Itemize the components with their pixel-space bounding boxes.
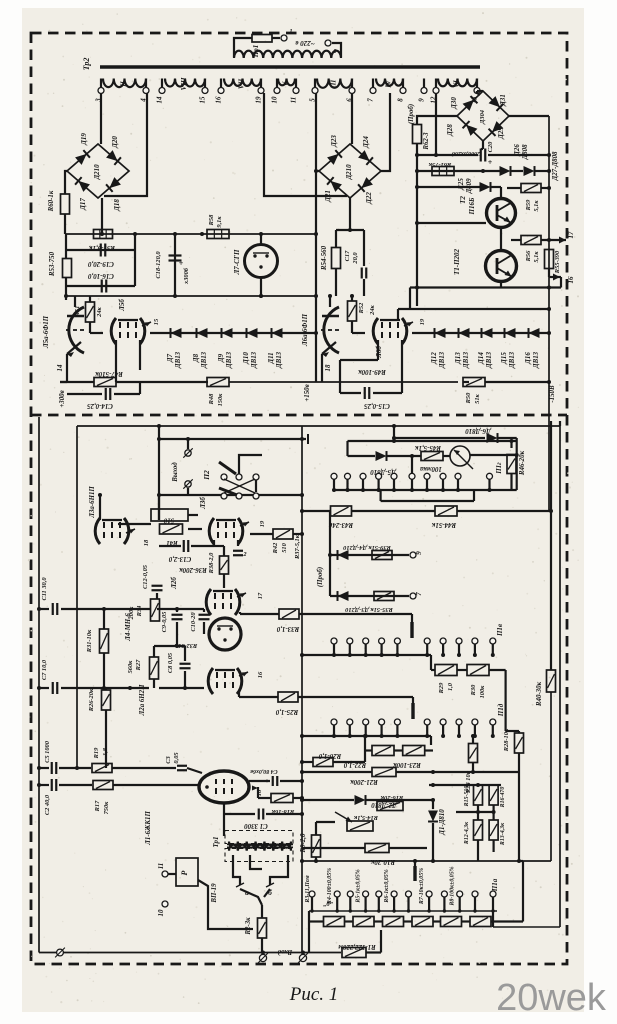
svg-text:Рис. 1: Рис. 1 xyxy=(289,984,339,1005)
svg-text:510: 510 xyxy=(163,517,174,524)
svg-text:Д25: Д25 xyxy=(458,178,465,191)
svg-text:ДВ13: ДВ13 xyxy=(175,351,182,369)
svg-text:R36-200к: R36-200к xyxy=(179,566,208,573)
svg-text:R30: R30 xyxy=(470,684,477,696)
svg-text:Д14: Д14 xyxy=(478,352,485,365)
svg-text:Д12: Д12 xyxy=(431,352,438,365)
svg-text:1,0: 1,0 xyxy=(447,682,454,691)
svg-text:10: 10 xyxy=(158,909,165,916)
svg-text:R40-30к: R40-30к xyxy=(536,681,543,707)
svg-text:R43-24к: R43-24к xyxy=(328,521,354,528)
svg-text:R25-1,0: R25-1,0 xyxy=(275,708,299,715)
svg-text:+300в: +300в xyxy=(59,390,66,407)
svg-text:Д210: Д210 xyxy=(346,164,353,181)
svg-text:100к: 100к xyxy=(479,685,486,699)
svg-text:Л3б: Л3б xyxy=(199,497,207,510)
svg-text:Р: Р xyxy=(180,870,189,875)
svg-text:R49-100к: R49-100к xyxy=(358,368,387,375)
svg-text:R14-5,1к: R14-5,1к xyxy=(353,814,379,821)
svg-text:R1-122,220м: R1-122,220м xyxy=(338,943,377,950)
svg-text:VIII: VIII xyxy=(180,77,188,90)
svg-text:R15-510: R15-510 xyxy=(464,786,470,808)
svg-text:Д19: Д19 xyxy=(80,133,88,146)
svg-text:R60-1к: R60-1к xyxy=(48,190,55,212)
svg-text:R5-1к±0,05%: R5-1к±0,05% xyxy=(356,869,362,903)
svg-text:Д9: Д9 xyxy=(218,353,225,363)
svg-text:С15-0,25: С15-0,25 xyxy=(364,402,390,409)
svg-text:Л3а-6Н1П: Л3а-6Н1П xyxy=(89,486,96,519)
svg-text:Д28: Д28 xyxy=(447,124,454,137)
svg-text:С12-0,05: С12-0,05 xyxy=(142,564,149,589)
svg-text:5,1к: 5,1к xyxy=(533,251,540,263)
svg-text:Пр1: Пр1 xyxy=(252,45,260,58)
svg-text:750к: 750к xyxy=(103,801,110,815)
svg-text:17: 17 xyxy=(567,231,575,239)
svg-text:С1 3300: С1 3300 xyxy=(244,822,268,829)
svg-text:Д809: Д809 xyxy=(466,178,473,195)
svg-text:П16Б: П16Б xyxy=(468,197,476,215)
svg-text:Д30: Д30 xyxy=(451,97,458,110)
svg-text:Д13: Д13 xyxy=(455,352,462,365)
svg-text:ВП-19: ВП-19 xyxy=(211,883,218,904)
svg-text:С13-2,0: С13-2,0 xyxy=(168,555,191,562)
svg-text:Д27-Д808: Д27-Д808 xyxy=(552,151,559,181)
svg-text:11: 11 xyxy=(158,863,165,870)
svg-text:R9-2,0: R9-2,0 xyxy=(300,833,307,854)
svg-text:+: + xyxy=(488,158,493,167)
svg-text:R6-1к±0,05%: R6-1к±0,05% xyxy=(384,869,390,903)
svg-text:ДВ13: ДВ13 xyxy=(276,351,283,369)
svg-text:R3-11,Пом: R3-11,Пом xyxy=(305,875,311,903)
svg-text:Д23: Д23 xyxy=(330,135,338,148)
svg-text:16: 16 xyxy=(216,96,223,103)
svg-text:8: 8 xyxy=(398,98,405,102)
svg-text:С16-10,0: С16-10,0 xyxy=(88,272,114,279)
svg-text:Д15: Д15 xyxy=(501,352,508,365)
svg-text:Т1-П202: Т1-П202 xyxy=(453,248,461,275)
svg-text:С5 1000: С5 1000 xyxy=(44,740,51,763)
svg-text:7: 7 xyxy=(368,98,375,102)
svg-text:9: 9 xyxy=(419,98,426,102)
svg-text:15: 15 xyxy=(200,96,207,103)
svg-text:R61-75к: R61-75к xyxy=(428,161,452,168)
svg-text:Л6а-6Ф1П: Л6а-6Ф1П xyxy=(302,313,309,347)
svg-text:Д808: Д808 xyxy=(522,144,529,161)
svg-text:19: 19 xyxy=(419,318,426,325)
svg-text:18: 18 xyxy=(143,539,150,546)
svg-text:R8-100к±0,05%: R8-100к±0,05% xyxy=(450,866,456,906)
svg-text:+150в: +150в xyxy=(304,384,311,401)
svg-text:Д26: Д26 xyxy=(514,144,521,157)
svg-text:Вход: Вход xyxy=(277,948,293,955)
svg-text:9,1к: 9,1к xyxy=(216,216,223,228)
svg-text:R54-560: R54-560 xyxy=(321,245,328,271)
svg-text:R16-470: R16-470 xyxy=(500,787,506,809)
svg-text:R42: R42 xyxy=(272,542,279,554)
svg-text:С14-0,25: С14-0,25 xyxy=(87,402,113,409)
svg-text:R21-200к: R21-200к xyxy=(350,778,379,785)
svg-text:Д24: Д24 xyxy=(362,136,370,149)
svg-text:R35-51к Д3-Д210: R35-51к Д3-Д210 xyxy=(344,606,393,613)
svg-text:Д29: Д29 xyxy=(498,127,505,140)
svg-text:R62-3: R62-3 xyxy=(423,132,430,151)
svg-text:ДВ13: ДВ13 xyxy=(251,351,258,369)
svg-text:R19: R19 xyxy=(93,747,100,759)
svg-text:R23-100к: R23-100к xyxy=(393,761,422,768)
svg-text:С8 0,05: С8 0,05 xyxy=(167,652,174,673)
svg-text:R39-51к Д4-Д210: R39-51к Д4-Д210 xyxy=(342,544,391,551)
svg-text:18: 18 xyxy=(325,364,332,371)
svg-text:ДВ13: ДВ13 xyxy=(201,351,208,369)
svg-text:R31-10к: R31-10к xyxy=(86,629,93,653)
svg-text:Д8: Д8 xyxy=(193,353,200,363)
svg-text:100мка: 100мка xyxy=(420,465,442,472)
svg-text:R16-20к: R16-20к xyxy=(380,794,404,801)
svg-text:Д210: Д210 xyxy=(94,164,101,181)
svg-text:150к: 150к xyxy=(217,393,224,407)
svg-text:С18-120,0: С18-120,0 xyxy=(155,251,162,279)
svg-text:Тр2: Тр2 xyxy=(82,58,91,71)
svg-text:14: 14 xyxy=(157,96,164,103)
svg-text:7: 7 xyxy=(416,592,423,596)
svg-text:15: 15 xyxy=(153,318,160,325)
svg-text:Д17: Д17 xyxy=(79,198,87,211)
svg-text:24к: 24к xyxy=(96,306,103,317)
svg-text:П1д: П1д xyxy=(497,703,505,717)
svg-text:ДВ13: ДВ13 xyxy=(533,351,540,369)
svg-text:2000,0х20б: 2000,0х20б xyxy=(451,150,481,157)
svg-text:х300б: х300б xyxy=(183,267,190,285)
svg-text:Д20: Д20 xyxy=(111,136,119,149)
svg-text:II: II xyxy=(120,81,128,88)
svg-text:Д6-Д810: Д6-Д810 xyxy=(465,427,492,434)
svg-text:19: 19 xyxy=(256,96,263,103)
svg-text:R48: R48 xyxy=(208,393,215,405)
svg-text:П1г: П1г xyxy=(495,462,503,475)
svg-text:24к: 24к xyxy=(369,304,376,315)
svg-text:R51: R51 xyxy=(74,306,81,318)
svg-text:R26-20к: R26-20к xyxy=(88,688,95,712)
svg-text:Л2б: Л2б xyxy=(170,577,178,590)
svg-text:-150В: -150В xyxy=(549,385,556,403)
svg-text:С3: С3 xyxy=(165,755,172,763)
svg-text:Д11: Д11 xyxy=(268,352,275,364)
svg-text:П2: П2 xyxy=(202,470,211,481)
svg-text:VII: VII xyxy=(238,79,246,89)
svg-text:ДВ13: ДВ13 xyxy=(226,351,233,369)
svg-text:VI: VI xyxy=(453,80,461,88)
svg-text:Тр1: Тр1 xyxy=(212,836,220,847)
svg-text:Л1-6ЖК1П: Л1-6ЖК1П xyxy=(145,811,152,846)
svg-text:Д10: Д10 xyxy=(243,352,250,365)
svg-text:R46-20к: R46-20к xyxy=(519,450,526,476)
svg-text:ДВ13: ДВ13 xyxy=(463,351,470,369)
svg-text:51к: 51к xyxy=(474,393,481,403)
svg-text:С17: С17 xyxy=(344,250,351,261)
svg-text:С10-20: С10-20 xyxy=(190,612,197,632)
svg-text:Д22: Д22 xyxy=(365,192,373,205)
svg-text:III: III xyxy=(330,80,338,89)
svg-text:R55-390: R55-390 xyxy=(554,250,561,274)
svg-text:R47-510к: R47-510к xyxy=(95,370,124,377)
svg-text:Выход: Выход xyxy=(172,462,179,483)
svg-text:Д7: Д7 xyxy=(167,353,174,363)
svg-text:R2-3к: R2-3к xyxy=(245,917,252,936)
svg-text:С19-20,0: С19-20,0 xyxy=(88,260,114,267)
svg-text:Д1-Д810: Д1-Д810 xyxy=(439,809,446,836)
svg-text:С2 40,0: С2 40,0 xyxy=(44,794,51,815)
svg-text:ДВ13: ДВ13 xyxy=(439,351,446,369)
svg-text:R52: R52 xyxy=(358,302,365,314)
svg-text:(Проб): (Проб) xyxy=(317,567,324,587)
svg-text:С4 80,0х6в: С4 80,0х6в xyxy=(250,768,278,774)
svg-text:16: 16 xyxy=(257,671,264,678)
svg-text:С11 30,0: С11 30,0 xyxy=(41,577,48,601)
svg-text:R38-2,0: R38-2,0 xyxy=(208,552,215,575)
svg-text:С9-0,05: С9-0,05 xyxy=(161,611,168,633)
svg-text:Д16: Д16 xyxy=(525,352,532,365)
svg-text:R7-10к±0,05%: R7-10к±0,05% xyxy=(419,868,425,905)
svg-text:Л4-МН-6: Л4-МН-6 xyxy=(125,613,132,642)
svg-text:Л5б: Л5б xyxy=(118,299,126,312)
svg-text:10: 10 xyxy=(272,96,279,103)
svg-text:14: 14 xyxy=(57,364,64,371)
svg-text:R50: R50 xyxy=(465,392,472,404)
svg-text:20,0: 20,0 xyxy=(352,252,359,265)
svg-text:R13-4,3к: R13-4,3к xyxy=(500,822,506,846)
svg-text:+: + xyxy=(179,259,184,268)
svg-text:R34: R34 xyxy=(136,606,143,618)
svg-text:(Проб): (Проб) xyxy=(408,104,415,124)
svg-text:9: 9 xyxy=(416,551,423,555)
svg-text:11: 11 xyxy=(291,97,298,104)
svg-text:Л2а 6Н2П: Л2а 6Н2П xyxy=(139,684,146,717)
svg-text:R27: R27 xyxy=(135,659,142,671)
svg-text:5,1к: 5,1к xyxy=(533,200,540,212)
svg-text:R4-100±0,05%: R4-100±0,05% xyxy=(327,868,333,905)
svg-text:0,05: 0,05 xyxy=(173,752,180,764)
svg-text:R29: R29 xyxy=(438,682,445,694)
svg-text:R20-1,0: R20-1,0 xyxy=(318,752,342,759)
svg-text:R58: R58 xyxy=(208,214,215,226)
svg-text:R59: R59 xyxy=(525,199,532,211)
svg-text:R53-750: R53-750 xyxy=(49,251,56,277)
svg-text:Л7-СГП: Л7-СГП xyxy=(233,249,241,276)
svg-text:Д304: Д304 xyxy=(479,110,486,125)
svg-text:16: 16 xyxy=(567,276,575,284)
svg-text:„б”: „б” xyxy=(323,901,333,908)
svg-text:П1в: П1в xyxy=(496,624,504,637)
svg-text:19: 19 xyxy=(259,520,266,527)
svg-text:IV: IV xyxy=(385,79,393,89)
svg-text:Д31: Д31 xyxy=(500,94,507,107)
svg-text:ДВ13: ДВ13 xyxy=(486,351,493,369)
svg-text:R17: R17 xyxy=(94,800,101,812)
svg-text:R45-5,1к: R45-5,1к xyxy=(415,444,442,451)
svg-text:Л5а-6Ф1П: Л5а-6Ф1П xyxy=(43,315,50,349)
svg-text:20wek: 20wek xyxy=(496,977,607,1019)
svg-text:П1а: П1а xyxy=(491,878,499,892)
svg-text:R12-4,3к: R12-4,3к xyxy=(464,821,470,845)
svg-text:~220 в: ~220 в xyxy=(295,39,314,47)
svg-text:R33-1,0: R33-1,0 xyxy=(276,625,300,632)
svg-text:Т2: Т2 xyxy=(459,196,467,204)
svg-text:17: 17 xyxy=(257,592,264,599)
svg-text:R37-5,1к: R37-5,1к xyxy=(294,534,301,560)
svg-text:С20: С20 xyxy=(487,141,494,152)
svg-text:1: 1 xyxy=(289,28,292,35)
svg-text:510: 510 xyxy=(281,542,288,552)
svg-text:ДВ13: ДВ13 xyxy=(509,351,516,369)
svg-text:Д18: Д18 xyxy=(113,199,121,212)
svg-text:1,8: 1,8 xyxy=(102,747,109,756)
svg-text:560к: 560к xyxy=(127,660,134,674)
svg-text:R44-51к: R44-51к xyxy=(431,521,457,528)
svg-text:R56: R56 xyxy=(525,250,532,262)
svg-text:С7 10,0: С7 10,0 xyxy=(41,659,48,680)
